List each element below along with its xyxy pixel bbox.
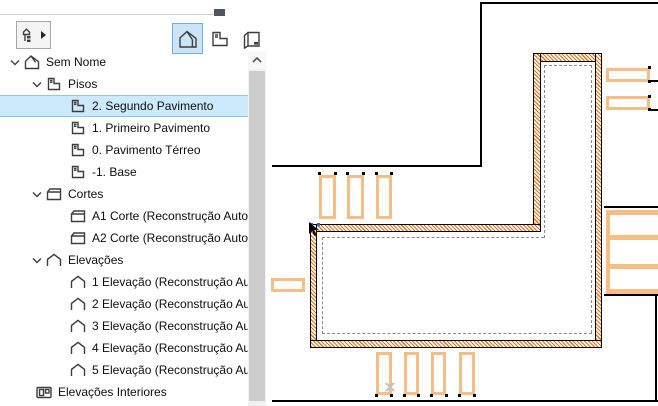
hotspot-dot[interactable]	[458, 394, 461, 397]
chevron-down-icon[interactable]	[30, 77, 44, 91]
tree-item-label: 5 Elevação (Reconstrução Automáti	[90, 363, 248, 377]
wall-segment[interactable]	[310, 224, 317, 348]
section-icon	[44, 185, 64, 203]
column-outline[interactable]	[404, 352, 419, 395]
hotspot-dot[interactable]	[403, 394, 406, 397]
hotspot-dot[interactable]	[346, 172, 349, 175]
column-outline[interactable]	[606, 96, 650, 110]
tree-item-label: A2 Corte (Reconstrução Automática	[90, 231, 248, 245]
tree-item-piso-1[interactable]: 1. Primeiro Pavimento	[0, 117, 248, 139]
project-navigator-tree: Sem Nome Pisos 2. Segundo Pavimento 1. P…	[0, 51, 248, 403]
tree-item-elevacoes-interiores[interactable]: Elevações Interiores	[0, 381, 248, 403]
tree-item-label: 1. Primeiro Pavimento	[90, 121, 210, 135]
wall-reference-line	[544, 65, 592, 66]
section-icon	[68, 229, 88, 247]
tree-item-corte-a2[interactable]: A2 Corte (Reconstrução Automática	[0, 227, 248, 249]
drawing-tick	[651, 80, 658, 82]
tree-item-label: Elevações Interiores	[56, 385, 167, 399]
toolbar-divider	[0, 14, 224, 15]
wall-reference-line	[322, 237, 544, 238]
chevron-down-icon[interactable]	[30, 187, 44, 201]
wall-segment[interactable]	[310, 340, 602, 348]
tree-item-label: 3 Elevação (Reconstrução Automáti	[90, 319, 248, 333]
section-icon	[68, 207, 88, 225]
chevron-down-icon[interactable]	[30, 253, 44, 267]
tree-item-elevacao-5[interactable]: 5 Elevação (Reconstrução Automáti	[0, 359, 248, 381]
tree-item-pisos[interactable]: Pisos	[0, 73, 248, 95]
tree-scrollbar[interactable]	[248, 51, 266, 406]
story-icon	[68, 97, 88, 115]
story-icon	[68, 141, 88, 159]
tree-item-piso-0[interactable]: 0. Pavimento Térreo	[0, 139, 248, 161]
elevation-icon	[68, 295, 88, 313]
story-icon	[44, 75, 64, 93]
tree-item-label: Sem Nome	[44, 55, 106, 69]
view-mode-button-group	[172, 23, 267, 54]
view-mode-layout-button[interactable]	[236, 23, 267, 54]
cursor-move-icon	[306, 221, 321, 237]
column-outline[interactable]	[319, 175, 336, 219]
column-outline[interactable]	[431, 352, 446, 395]
hotspot-dot[interactable]	[648, 66, 651, 69]
drawing-tick	[651, 109, 658, 111]
elevation-icon	[68, 361, 88, 379]
stack-divider-bar	[610, 264, 658, 269]
tree-item-label: 4 Elevação (Reconstrução Automáti	[90, 341, 248, 355]
hotspot-dot[interactable]	[473, 394, 476, 397]
chevron-up-icon	[252, 57, 262, 63]
wall-reference-line	[322, 237, 323, 334]
drawing-line	[480, 2, 482, 167]
tree-item-corte-a1[interactable]: A1 Corte (Reconstrução Automática	[0, 205, 248, 227]
drawing-line	[655, 294, 657, 402]
hotspot-dot[interactable]	[417, 394, 420, 397]
elevation-icon	[68, 339, 88, 357]
hotspot-dot[interactable]	[390, 172, 393, 175]
column-outline[interactable]	[376, 175, 392, 219]
tree-item-elevacao-1[interactable]: 1 Elevação (Reconstrução Automáti	[0, 271, 248, 293]
navigator-panel: Sem Nome Pisos 2. Segundo Pavimento 1. P…	[0, 0, 266, 406]
wall-segment[interactable]	[310, 224, 541, 232]
drawing-line	[604, 206, 658, 208]
tree-item-cortes[interactable]: Cortes	[0, 183, 248, 205]
tree-item-label: 0. Pavimento Térreo	[90, 143, 201, 157]
tree-item-piso-2[interactable]: 2. Segundo Pavimento	[0, 95, 248, 117]
house-icon	[22, 53, 42, 71]
wall-segment[interactable]	[533, 53, 541, 232]
column-outline[interactable]	[347, 175, 364, 219]
hotspot-dot[interactable]	[390, 394, 393, 397]
wall-segment[interactable]	[533, 53, 602, 62]
hotspot-dot[interactable]	[334, 172, 337, 175]
story-icon	[68, 119, 88, 137]
tree-item-label: -1. Base	[90, 165, 137, 179]
project-tree-icon	[21, 26, 39, 44]
layout-book-icon	[241, 28, 263, 50]
hotspot-dot[interactable]	[318, 172, 321, 175]
column-outline[interactable]	[606, 68, 650, 82]
window-stack[interactable]	[606, 210, 658, 294]
tree-item-label: Elevações	[66, 253, 123, 267]
tree-item-elevacao-2[interactable]: 2 Elevação (Reconstrução Automáti	[0, 293, 248, 315]
elevation-icon	[68, 317, 88, 335]
tree-item-label: 2. Segundo Pavimento	[90, 99, 213, 113]
panel-splitter-handle[interactable]	[214, 9, 225, 16]
wall-reference-line	[591, 65, 592, 333]
drawing-line	[272, 165, 482, 167]
tree-item-elevacoes[interactable]: Elevações	[0, 249, 248, 271]
wall-reference-line	[544, 65, 545, 238]
scrollbar-thumb[interactable]	[249, 71, 265, 401]
hotspot-dot[interactable]	[430, 394, 433, 397]
wall-reference-line	[322, 333, 592, 334]
tree-item-label: A1 Corte (Reconstrução Automática	[90, 209, 248, 223]
wall-segment[interactable]	[595, 53, 602, 348]
hotspot-dot[interactable]	[375, 172, 378, 175]
story-icon	[209, 28, 231, 50]
project-tree-selector-button[interactable]	[16, 21, 51, 49]
tree-item-label: Cortes	[66, 187, 103, 201]
tree-item-label: Pisos	[66, 77, 97, 91]
tree-item-piso-m1[interactable]: -1. Base	[0, 161, 248, 183]
drawing-line	[480, 2, 658, 4]
tree-item-elevacao-4[interactable]: 4 Elevação (Reconstrução Automáti	[0, 337, 248, 359]
tree-item-label: 2 Elevação (Reconstrução Automáti	[90, 297, 248, 311]
view-mode-story-button[interactable]	[204, 23, 235, 54]
tree-item-sem-nome[interactable]: Sem Nome	[0, 51, 248, 73]
hotspot-dot[interactable]	[362, 172, 365, 175]
hotspot-dot[interactable]	[445, 394, 448, 397]
tree-item-label: 1 Elevação (Reconstrução Automáti	[90, 275, 248, 289]
right-arrow-icon	[41, 31, 46, 39]
drawing-line	[272, 400, 658, 402]
hotspot-dot[interactable]	[375, 394, 378, 397]
hotspot-dot[interactable]	[648, 95, 651, 98]
story-icon	[68, 163, 88, 181]
elevation-icon	[44, 251, 64, 269]
elevation-icon	[68, 273, 88, 291]
column-outline[interactable]	[459, 352, 475, 395]
tree-item-elevacao-3[interactable]: 3 Elevação (Reconstrução Automáti	[0, 315, 248, 337]
view-mode-model-button[interactable]	[172, 23, 203, 54]
stack-divider-bar	[610, 235, 658, 240]
drawing-line	[604, 294, 658, 296]
application-window: Sem Nome Pisos 2. Segundo Pavimento 1. P…	[0, 0, 658, 406]
chevron-down-icon[interactable]	[8, 55, 22, 69]
house-icon	[177, 28, 199, 50]
snap-cross-icon	[384, 381, 396, 393]
interior-elevation-icon	[34, 383, 54, 401]
column-outline[interactable]	[271, 278, 305, 292]
scrollbar-up-button[interactable]	[248, 51, 266, 69]
